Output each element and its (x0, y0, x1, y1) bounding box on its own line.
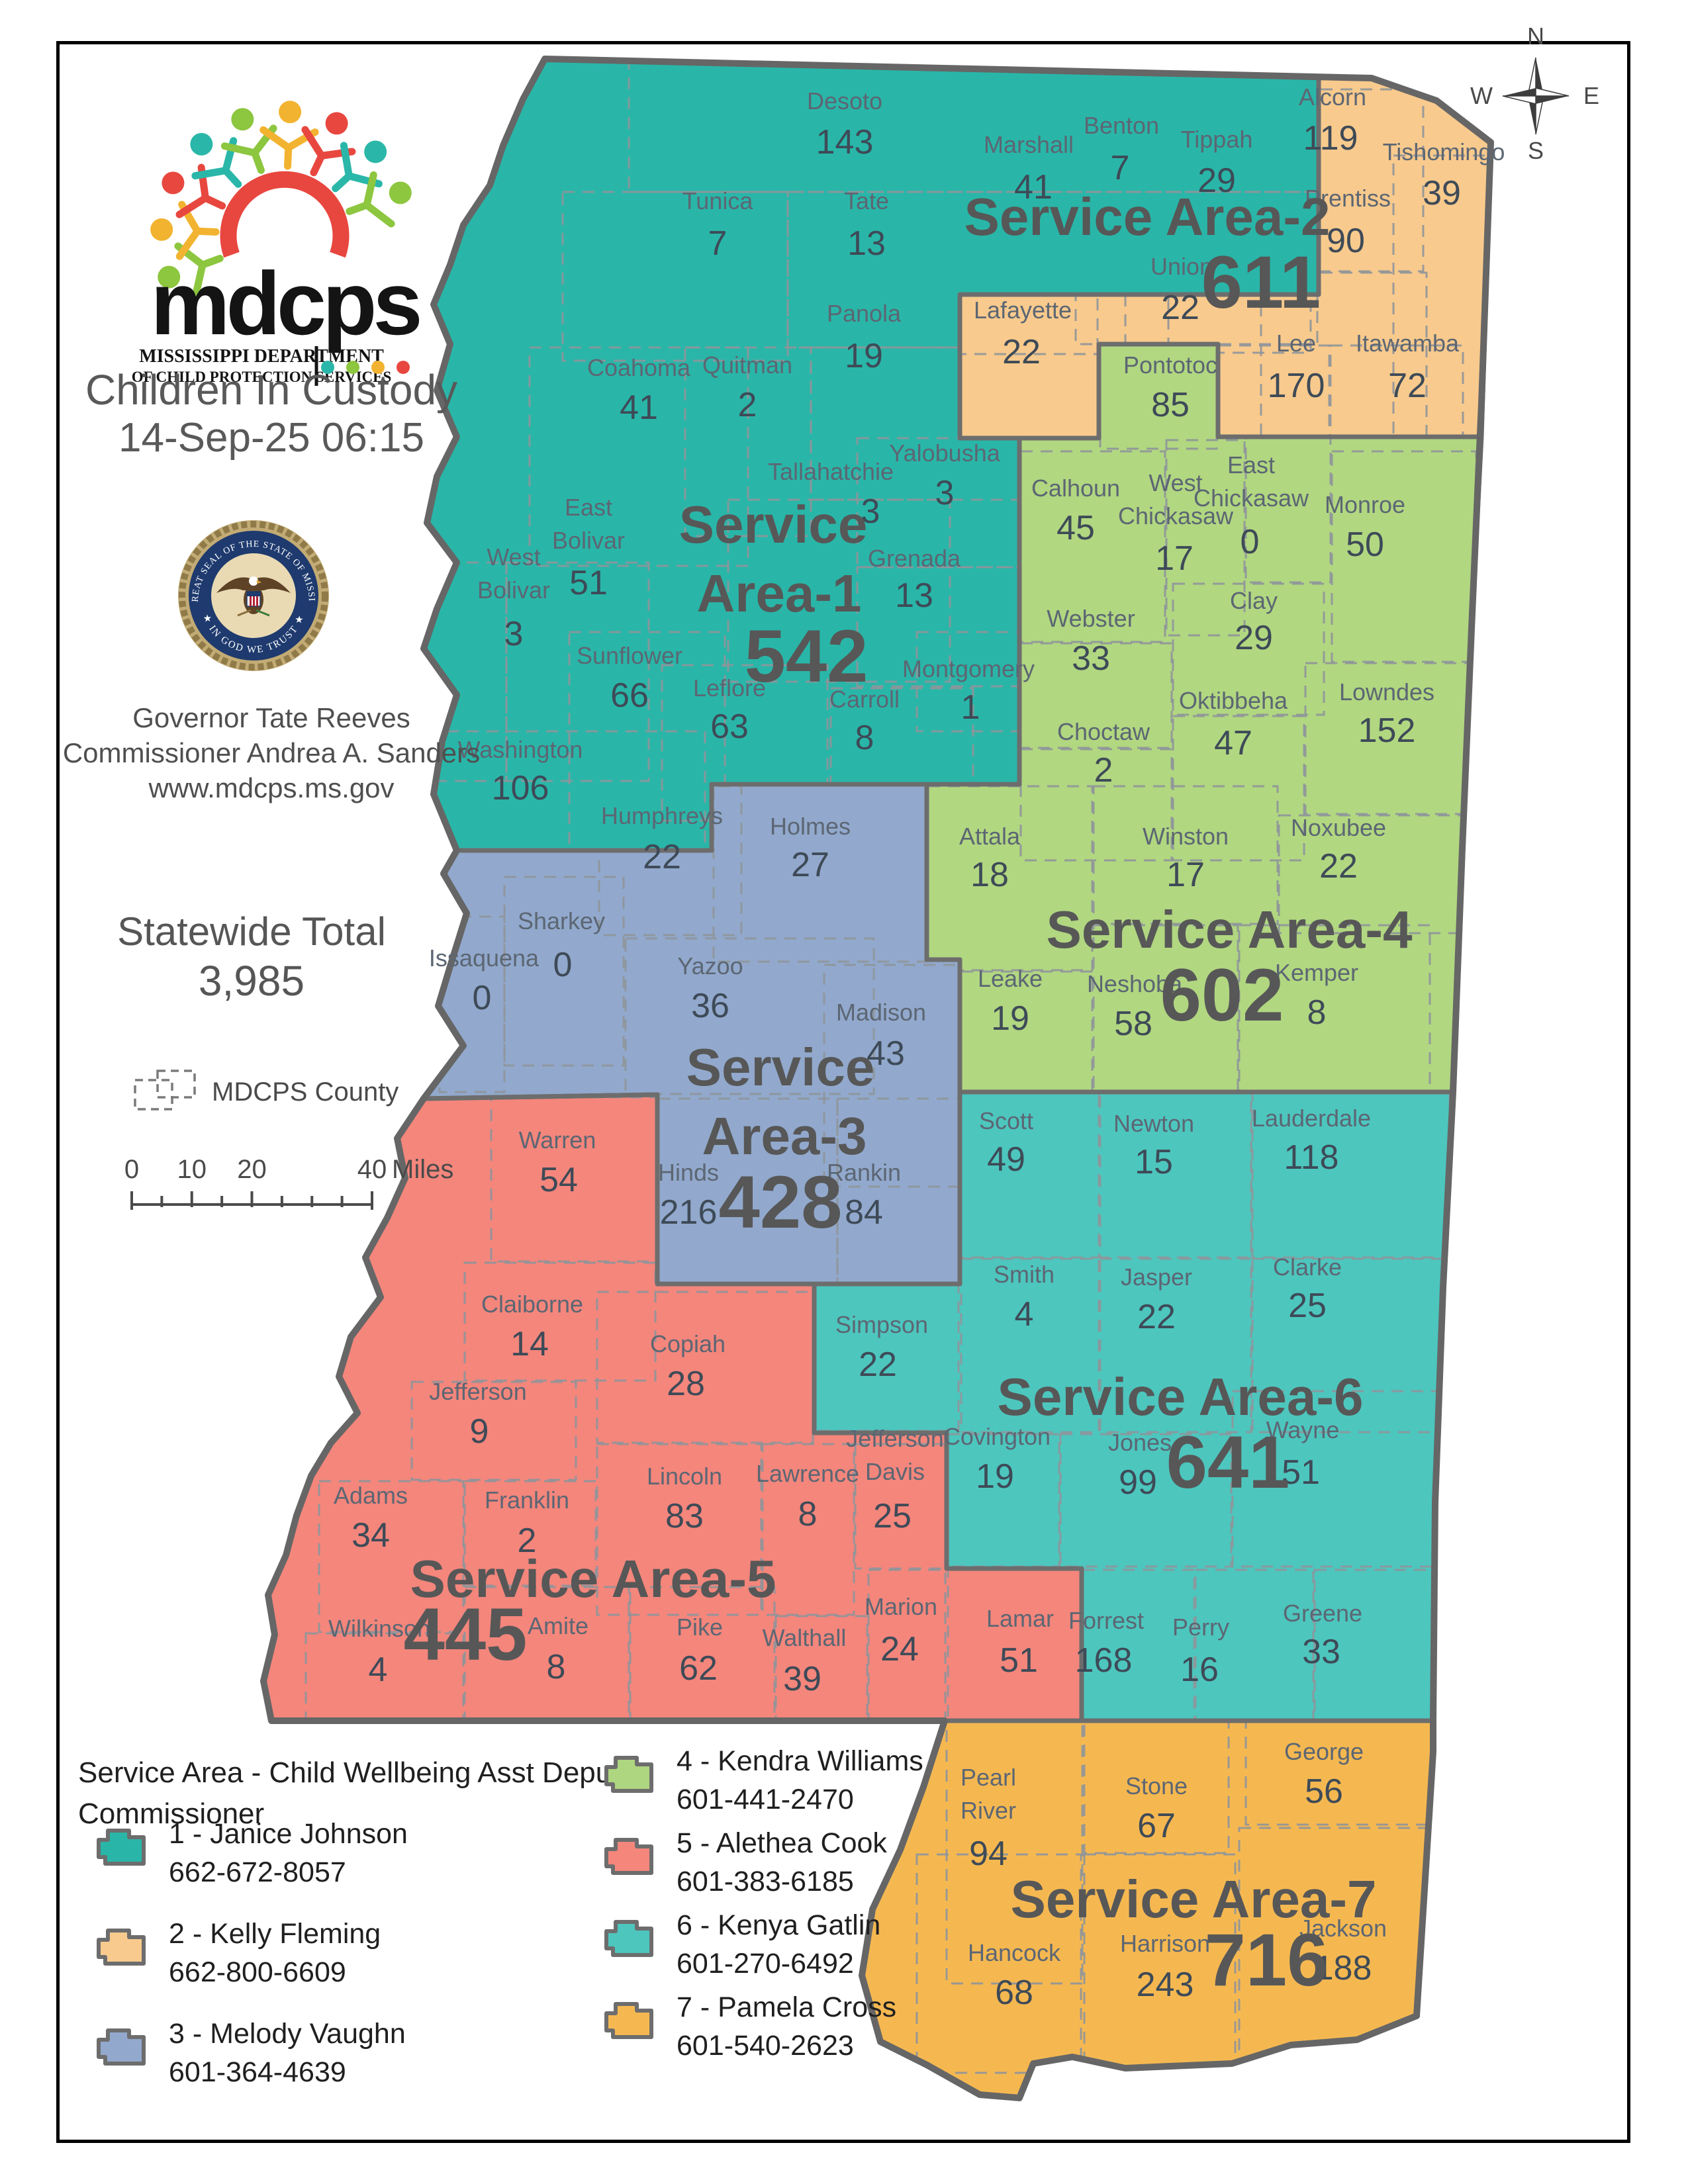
county-value: 63 (710, 707, 749, 746)
legend-item-area-4: 4 - Kendra Williams601-441-2470 (604, 1742, 923, 1819)
commissioner-line: Commissioner Andrea A. Sanders (23, 735, 520, 770)
county-value: 4 (1015, 1295, 1034, 1334)
county-value: 41 (620, 388, 658, 427)
legend-swatch-area-5 (604, 1833, 657, 1877)
county-hinds: Hinds216 (658, 1159, 719, 1232)
county-value: 1 (961, 688, 980, 727)
county-value: 18 (970, 856, 1009, 894)
county-name: Winston (1143, 823, 1229, 850)
county-value: 22 (1161, 289, 1199, 327)
county-value: 94 (969, 1835, 1008, 1873)
logo-person-icon (336, 140, 387, 188)
county-value: 22 (1319, 847, 1358, 886)
legend-item-name: 7 - Pamela Cross (677, 1988, 896, 2026)
county-name: Leake (978, 965, 1043, 992)
county-name: Oktibbeha (1179, 687, 1288, 714)
county-value: 170 (1268, 367, 1325, 405)
county-value: 16 (1180, 1651, 1219, 1689)
legend-item-area-6: 6 - Kenya Gatlin601-270-6492 (604, 1906, 880, 1983)
county-name: Attala (959, 823, 1021, 850)
scale-bar: 0102040Miles (106, 1150, 516, 1236)
county-name: Walthall (763, 1624, 847, 1651)
legend-swatch-area-4 (604, 1751, 657, 1795)
county-value: 51 (569, 564, 608, 602)
legend-swatch-area-7 (604, 1997, 657, 2041)
county-value: 4 (369, 1651, 388, 1689)
county-name: Montgomery (902, 655, 1035, 682)
county-name: Calhoun (1031, 475, 1120, 502)
legend-item-area-3: 3 - Melody Vaughn601-364-4639 (96, 2015, 406, 2091)
county-value: 83 (665, 1497, 704, 1535)
county-value: 152 (1358, 711, 1416, 750)
county-name: Adams (334, 1482, 408, 1509)
county-value: 36 (691, 987, 729, 1025)
county-value: 56 (1305, 1772, 1343, 1811)
county-name: Sharkey (518, 907, 605, 934)
county-value: 85 (1151, 386, 1190, 424)
legend-item-area-5: 5 - Alethea Cook601-383-6185 (604, 1824, 887, 1901)
county-name: Marshall (984, 131, 1074, 158)
logo-wordmark: mdcps (150, 253, 419, 353)
scale-tick-label: 40 (357, 1155, 387, 1184)
legend-item-phone: 662-672-8057 (169, 1853, 408, 1891)
county-value: 39 (783, 1660, 821, 1698)
statewide-total: Statewide Total 3,985 (40, 908, 463, 1006)
report-datetime: 14-Sep-25 06:15 (40, 414, 503, 462)
county-value: 8 (798, 1495, 818, 1533)
area-total: 428 (719, 1161, 843, 1244)
county-value: 54 (539, 1161, 578, 1199)
compass-e-label: E (1583, 82, 1599, 109)
county-name: Covington (943, 1423, 1051, 1450)
area-total: 602 (1160, 954, 1284, 1036)
county-name: Smith (994, 1261, 1055, 1288)
legend-header-line1: Service Area - Child Wellbeing Asst Depu… (78, 1752, 647, 1794)
county-value: 27 (791, 846, 829, 884)
county-value: 33 (1072, 639, 1110, 678)
county-name: Franklin (485, 1486, 569, 1514)
county-outline-icon (132, 1067, 205, 1113)
compass-w-label: W (1470, 82, 1493, 109)
legend-item-name: 1 - Janice Johnson (169, 1815, 408, 1853)
county-name: Greene (1283, 1600, 1362, 1627)
county-name: Yalobusha (889, 439, 1000, 467)
county-name: Webster (1047, 605, 1135, 632)
county-value: 67 (1137, 1807, 1176, 1845)
legend-item-name: 5 - Alethea Cook (677, 1824, 887, 1862)
scale-unit-label: Miles (392, 1155, 453, 1184)
county-name: Lamar (986, 1605, 1054, 1632)
county-value: 84 (845, 1193, 883, 1232)
logo-person-icon (190, 133, 238, 184)
county-name: Harrison (1120, 1930, 1210, 1957)
mdcps-logo: mdcpsMISSISSIPPI DEPARTMENTOF CHILD PROT… (99, 69, 470, 400)
state-seal: THE GREAT SEAL OF THE STATE OF MISSISSIP… (167, 510, 340, 682)
county-value: 17 (1155, 539, 1194, 578)
county-name: Madison (836, 999, 926, 1026)
gov-block: Governor Tate Reeves Commissioner Andrea… (23, 700, 520, 805)
county-name: Coahoma (587, 354, 691, 381)
title-block: Children In Custody 14-Sep-25 06:15 (40, 365, 503, 462)
county-name: Jasper (1121, 1263, 1192, 1291)
county-name: Simpson (835, 1311, 928, 1338)
area-label-text: Area-3 (702, 1107, 867, 1165)
county-name: Lafayette (974, 296, 1072, 324)
county-value: 9 (470, 1412, 489, 1451)
county-tate: Tate13 (844, 187, 889, 263)
county-value: 143 (816, 123, 874, 161)
county-name: Forrest (1068, 1607, 1144, 1634)
legend-item-name: 6 - Kenya Gatlin (677, 1906, 880, 1944)
page: Desoto143Tunica7Tate13Coahoma41Quitman2P… (0, 0, 1688, 2184)
legend-swatch-area-6 (604, 1915, 657, 1959)
county-value: 34 (352, 1516, 390, 1555)
logo-org-line1: MISSISSIPPI DEPARTMENT (139, 346, 384, 367)
scale-tick-label: 20 (237, 1155, 267, 1184)
county-value: 68 (995, 1974, 1033, 2012)
legend-item-area-2: 2 - Kelly Fleming662-800-6609 (96, 1915, 381, 1991)
county-name: Hancock (968, 1939, 1061, 1966)
area-total: 542 (745, 615, 868, 698)
county-value: 8 (547, 1648, 566, 1686)
compass-n-label: N (1527, 23, 1544, 50)
logo-arc (228, 179, 341, 255)
legend-swatch-area-3 (96, 2024, 149, 2068)
area-label-text: Service Area-4 (1047, 900, 1413, 959)
county-value: 22 (643, 838, 681, 876)
county-name: Humphreys (601, 802, 723, 829)
county-value: 17 (1166, 856, 1205, 894)
county-name: Tippah (1181, 126, 1253, 153)
legend-item-phone: 662-800-6609 (169, 1953, 381, 1991)
county-value: 0 (473, 979, 492, 1017)
county-name: Itawamba (1356, 330, 1460, 357)
county-name: Lincoln (647, 1463, 722, 1490)
county-name: Kemper (1275, 959, 1358, 986)
county-name: Desoto (807, 87, 882, 114)
county-key-label: MDCPS County (212, 1077, 399, 1107)
county-name: Lawrence (756, 1460, 859, 1487)
legend-item-phone: 601-383-6185 (677, 1862, 887, 1901)
county-value: 8 (1307, 993, 1327, 1032)
county-desoto: Desoto143 (807, 87, 882, 161)
county-name: Noxubee (1291, 814, 1386, 841)
county-name: Jefferson (429, 1378, 526, 1405)
county-value: 2 (738, 386, 757, 424)
county-value: 3 (504, 615, 524, 653)
county-value: 216 (660, 1193, 718, 1232)
legend-swatch-area-2 (96, 1924, 149, 1968)
county-name: Clarke (1273, 1253, 1342, 1281)
county-clay: Clay29 (1230, 587, 1278, 657)
legend-item-phone: 601-441-2470 (677, 1780, 923, 1819)
county-value: 28 (667, 1365, 705, 1403)
county-name: Amite (528, 1612, 588, 1639)
county-value: 13 (895, 576, 933, 615)
area-label-text: Area-1 (696, 564, 861, 623)
legend-item-phone: 601-364-4639 (169, 2053, 406, 2091)
legend-item-phone: 601-540-2623 (677, 2026, 896, 2065)
county-value: 45 (1056, 509, 1095, 547)
area-total: 716 (1205, 1919, 1329, 2001)
statewide-total-value: 3,985 (40, 956, 463, 1006)
county-name: Sunflower (577, 642, 682, 669)
legend-item-name: 3 - Melody Vaughn (169, 2015, 406, 2053)
county-name: Holmes (770, 813, 851, 840)
county-name: Lowndes (1339, 678, 1434, 705)
county-name: Monroe (1325, 491, 1405, 518)
county-value: 14 (510, 1325, 549, 1363)
legend-item-phone: 601-270-6492 (677, 1944, 880, 1983)
county-name: Marion (865, 1593, 937, 1620)
county-value: 90 (1327, 222, 1365, 260)
area-label-text: Service (679, 495, 868, 554)
area-total: 641 (1166, 1421, 1290, 1504)
county-value: 29 (1235, 619, 1273, 657)
county-name: Jones (1108, 1429, 1172, 1456)
county-name: Lauderdale (1252, 1105, 1371, 1132)
scale-tick-label: 10 (177, 1155, 207, 1184)
county-name: Panola (827, 300, 902, 327)
county-name: Pike (677, 1614, 723, 1641)
county-name: Yazoo (677, 952, 743, 979)
county-value: 39 (1423, 174, 1461, 212)
county-value: 2 (1094, 751, 1113, 790)
county-value: 0 (553, 946, 573, 984)
county-value: 243 (1137, 1966, 1194, 2004)
website-line: www.mdcps.ms.gov (23, 770, 520, 805)
county-name: Quitman (702, 351, 792, 379)
county-alcorn: Alcorn119 (1299, 83, 1366, 158)
county-value: 0 (1241, 523, 1260, 561)
county-value: 66 (610, 676, 649, 715)
county-name: Pontotoc (1123, 351, 1217, 379)
county-value: 19 (845, 337, 883, 375)
county-name: Choctaw (1057, 718, 1150, 745)
legend-item-name: 4 - Kendra Williams (677, 1742, 923, 1780)
county-name: Scott (979, 1107, 1033, 1134)
area-total: 611 (1201, 241, 1321, 324)
governor-line: Governor Tate Reeves (23, 700, 520, 735)
legend-item-area-7: 7 - Pamela Cross601-540-2623 (604, 1988, 896, 2065)
county-value: 50 (1346, 525, 1384, 564)
county-value: 99 (1119, 1463, 1157, 1502)
mdcps-county-key: MDCPS County (132, 1067, 477, 1120)
county-name: Tallahatchie (768, 458, 894, 485)
county-value: 19 (991, 999, 1029, 1038)
county-pike: Pike62 (677, 1614, 723, 1688)
area-label-text: Service Area-2 (964, 187, 1331, 246)
area-label-text: Service (686, 1038, 875, 1097)
county-value: 51 (1000, 1641, 1038, 1680)
county-value: 19 (976, 1457, 1014, 1496)
county-value: 25 (1288, 1287, 1327, 1325)
compass-s-label: S (1528, 137, 1544, 164)
county-name: Claiborne (481, 1291, 583, 1318)
county-scott: Scott49 (979, 1107, 1033, 1179)
county-name: Grenada (868, 545, 961, 572)
county-name: Alcorn (1299, 83, 1366, 111)
county-value: 8 (855, 719, 874, 757)
county-value: 24 (880, 1630, 919, 1668)
county-name: Stone (1125, 1772, 1188, 1799)
county-name: Perry (1172, 1614, 1229, 1641)
county-value: 119 (1303, 119, 1358, 158)
county-value: 62 (679, 1649, 718, 1688)
county-name: Tunica (682, 187, 754, 214)
county-value: 58 (1114, 1005, 1152, 1043)
county-name: Warren (519, 1126, 596, 1154)
county-value: 22 (1137, 1298, 1176, 1336)
area-total: 445 (404, 1593, 528, 1676)
county-name: Tishomingo (1383, 138, 1505, 165)
county-value: 168 (1075, 1641, 1133, 1680)
county-value: 72 (1388, 367, 1427, 405)
legend-item-name: 2 - Kelly Fleming (169, 1915, 381, 1953)
county-name: Benton (1084, 112, 1159, 139)
scale-tick-label: 0 (124, 1155, 139, 1184)
county-value: 47 (1214, 724, 1252, 762)
county-value: 118 (1284, 1138, 1339, 1177)
page-title: Children In Custody (40, 365, 503, 414)
statewide-total-label: Statewide Total (40, 908, 463, 956)
county-value: 22 (1002, 333, 1041, 371)
county-value: 25 (873, 1497, 912, 1535)
county-name: Tate (844, 187, 889, 214)
area-label-text: Service Area-6 (998, 1367, 1364, 1426)
county-value: 15 (1135, 1143, 1173, 1181)
county-name: George (1284, 1738, 1364, 1765)
legend-swatch-area-1 (96, 1824, 149, 1868)
county-value: 13 (847, 224, 886, 263)
county-name: Copiah (650, 1330, 726, 1357)
legend-item-area-1: 1 - Janice Johnson662-672-8057 (96, 1815, 408, 1891)
county-name: Clay (1230, 587, 1278, 614)
county-value: 22 (859, 1345, 897, 1384)
county-name: Lee (1276, 330, 1316, 357)
county-name: Newton (1113, 1110, 1194, 1137)
county-value: 49 (987, 1140, 1025, 1179)
county-value: 3 (935, 474, 955, 512)
county-value: 33 (1302, 1633, 1340, 1671)
county-value: 7 (708, 224, 727, 263)
county-value: 7 (1111, 149, 1130, 187)
